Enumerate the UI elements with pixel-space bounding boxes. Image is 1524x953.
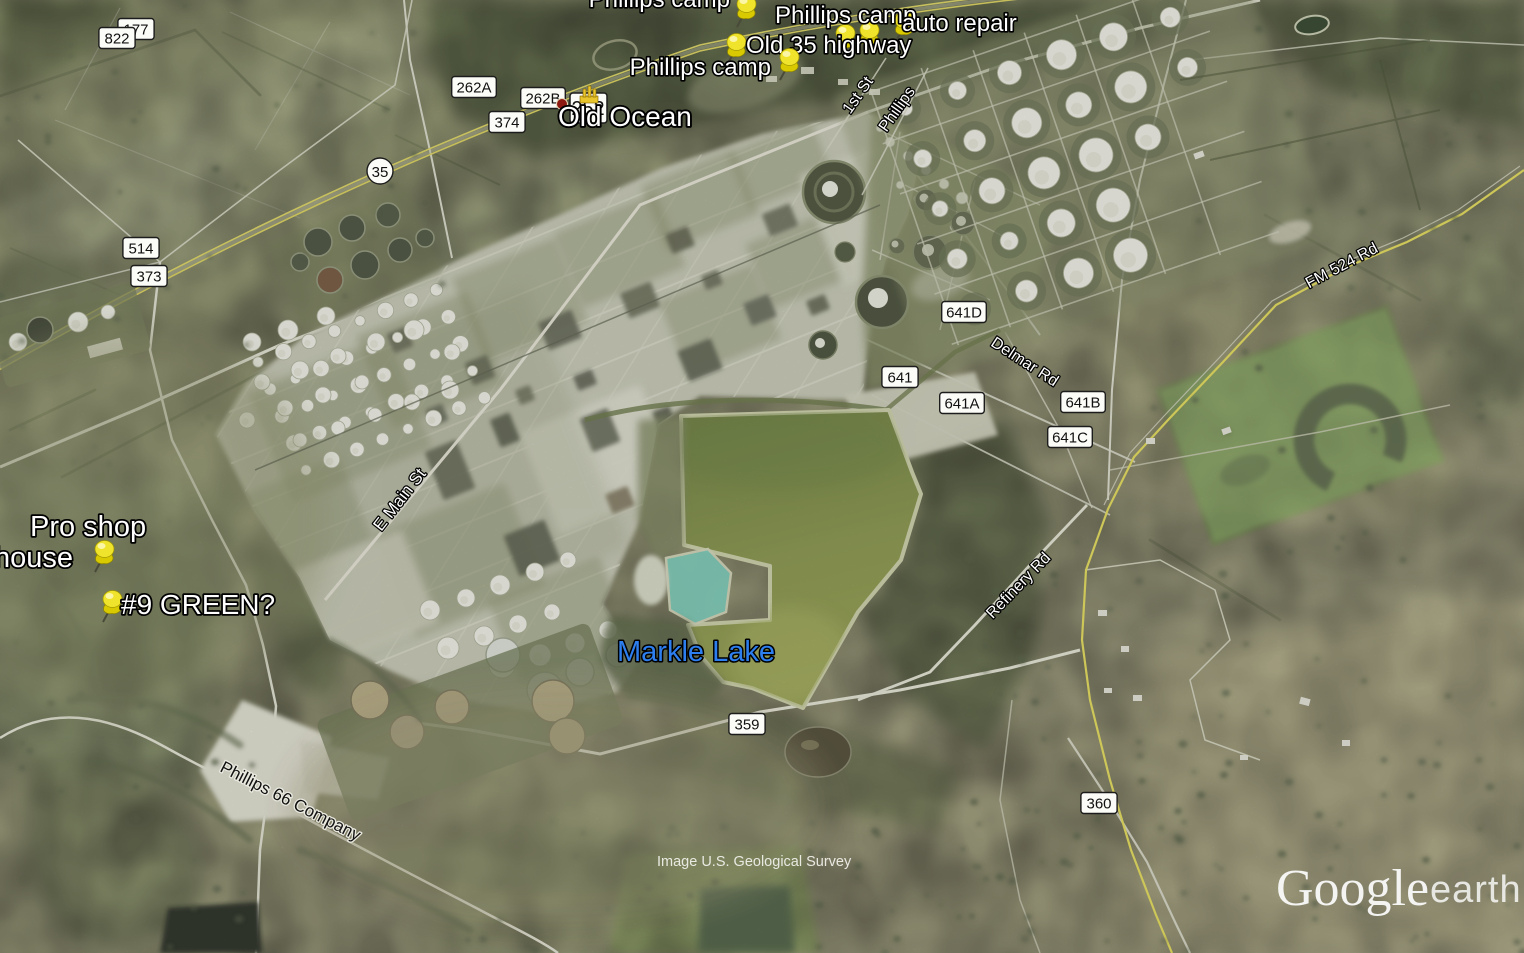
svg-text:Phillips camp: Phillips camp [775, 2, 916, 29]
svg-text:Old Ocean: Old Ocean [558, 101, 692, 132]
svg-text:house: house [0, 542, 73, 574]
svg-text:374: 374 [494, 114, 519, 131]
svg-text:auto repair: auto repair [902, 10, 1017, 37]
svg-text:641: 641 [887, 369, 912, 386]
svg-text:373: 373 [136, 268, 161, 285]
svg-text:262B: 262B [525, 90, 560, 107]
svg-text:641A: 641A [944, 395, 979, 412]
svg-text:#9 GREEN?: #9 GREEN? [121, 589, 275, 620]
svg-text:Markle Lake: Markle Lake [617, 636, 775, 668]
svg-text:359: 359 [734, 716, 759, 733]
svg-text:Google: Google [1276, 860, 1429, 917]
svg-text:641B: 641B [1065, 394, 1100, 411]
svg-text:641C: 641C [1052, 429, 1088, 446]
svg-text:641D: 641D [946, 304, 982, 321]
svg-text:Phillips camp: Phillips camp [589, 0, 730, 13]
svg-text:262A: 262A [456, 79, 491, 96]
svg-text:514: 514 [128, 240, 153, 257]
svg-text:Phillips camp: Phillips camp [630, 54, 771, 81]
svg-text:earth: earth [1430, 869, 1522, 911]
svg-text:Pro shop: Pro shop [30, 511, 146, 543]
svg-text:360: 360 [1086, 795, 1111, 812]
svg-text:822: 822 [104, 30, 129, 47]
svg-text:35: 35 [372, 164, 389, 181]
svg-text:Image U.S. Geological Survey: Image U.S. Geological Survey [657, 854, 852, 870]
